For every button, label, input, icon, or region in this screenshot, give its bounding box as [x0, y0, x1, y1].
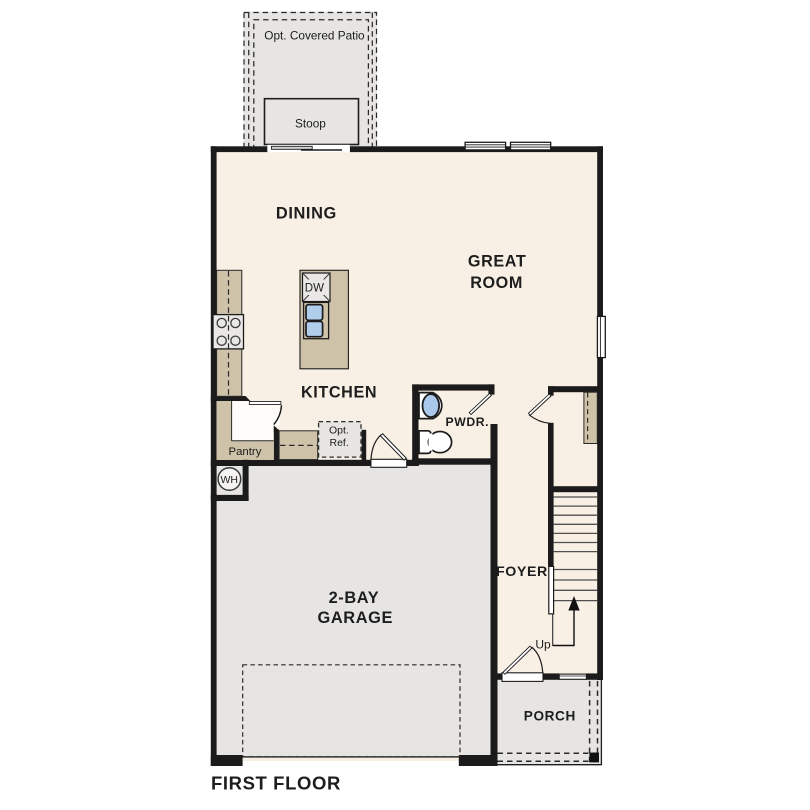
svg-text:PWDR.: PWDR. [446, 415, 490, 429]
svg-text:FOYER: FOYER [496, 564, 548, 580]
svg-text:GREAT: GREAT [468, 253, 526, 271]
svg-text:Opt.: Opt. [329, 425, 349, 437]
svg-text:Up: Up [535, 638, 551, 652]
svg-text:Ref.: Ref. [330, 437, 349, 449]
svg-text:2-BAY: 2-BAY [329, 589, 380, 607]
svg-text:KITCHEN: KITCHEN [301, 383, 377, 401]
svg-text:FIRST FLOOR: FIRST FLOOR [211, 772, 341, 793]
svg-text:Stoop: Stoop [295, 117, 326, 131]
svg-text:ROOM: ROOM [470, 274, 523, 292]
svg-text:GARAGE: GARAGE [318, 609, 394, 627]
svg-text:Opt. Covered Patio: Opt. Covered Patio [264, 29, 365, 43]
svg-text:WH: WH [221, 474, 239, 486]
svg-text:DINING: DINING [276, 205, 337, 223]
svg-text:PORCH: PORCH [524, 709, 576, 724]
svg-text:DW: DW [305, 282, 324, 294]
svg-text:Pantry: Pantry [229, 446, 262, 458]
